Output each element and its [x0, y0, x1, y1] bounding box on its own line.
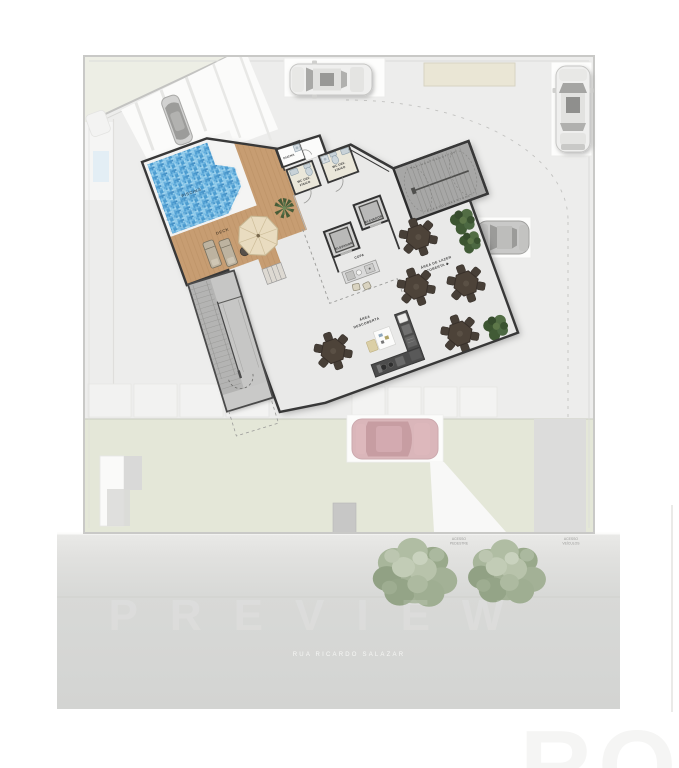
svg-text:RUA RICARDO SALAZAR: RUA RICARDO SALAZAR [293, 652, 405, 658]
svg-text:VEÍCULOS: VEÍCULOS [562, 542, 580, 546]
svg-text:PREVIEW: PREVIEW [109, 591, 536, 640]
svg-text:PEDESTRE: PEDESTRE [450, 542, 469, 546]
svg-text:ACESSO: ACESSO [564, 537, 578, 541]
svg-text:ACESSO: ACESSO [452, 537, 466, 541]
svg-text:ROO: ROO [520, 710, 679, 768]
